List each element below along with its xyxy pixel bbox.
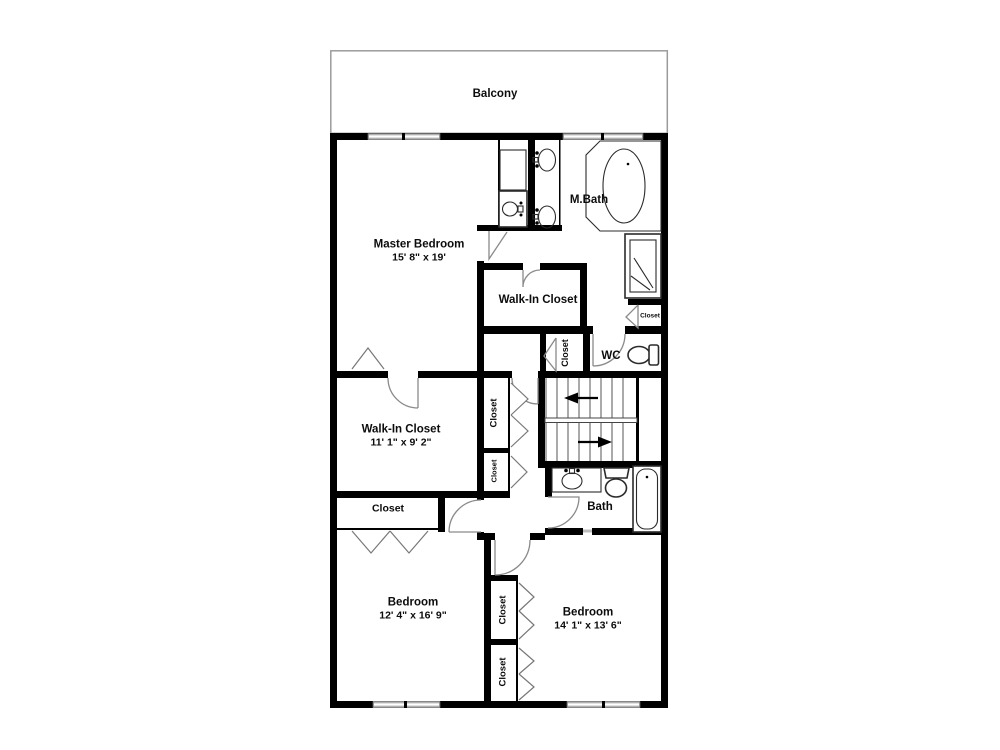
- label-closet-bedroom-right-lower: Closet: [498, 657, 509, 686]
- wic-upper-door-icon: [523, 270, 540, 287]
- label-master-bath: M.Bath: [570, 193, 608, 207]
- label-bedroom-right: Bedroom 14' 1" x 13' 6": [554, 605, 622, 633]
- vanity-sink-icon: [533, 149, 556, 171]
- bedroom-left-name: Bedroom: [379, 595, 447, 609]
- window-mullion: [601, 133, 604, 140]
- label-bath: Bath: [587, 500, 613, 514]
- label-closet-hall-lower: Closet: [490, 460, 499, 483]
- wic-lower-dims: 11' 1" x 9' 2": [362, 437, 441, 450]
- label-walk-in-closet-upper: Walk-In Closet: [499, 293, 578, 307]
- shower-icon: [625, 234, 661, 298]
- window-mullion: [404, 701, 407, 708]
- laundry-nook: [499, 150, 527, 227]
- bifold-door-icon: [352, 348, 384, 369]
- door-threshold: [583, 530, 592, 533]
- stair-railing: [545, 418, 637, 423]
- bath-sink-icon: [552, 468, 601, 492]
- stairs: [545, 378, 637, 461]
- floorplan-canvas: Balcony Master Bedroom 15' 8" x 19' M.Ba…: [0, 0, 1000, 750]
- closet-name: Closet: [640, 313, 660, 320]
- bedroom-right-name: Bedroom: [554, 605, 622, 619]
- master-bedroom-dims: 15' 8" x 19': [374, 252, 465, 265]
- bifold-door-icon: [511, 383, 528, 415]
- master-door-icon: [489, 231, 507, 259]
- closet-name: Closet: [498, 657, 509, 686]
- label-closet-bedroom-right-upper: Closet: [498, 595, 509, 624]
- bifold-door-icon: [519, 648, 534, 674]
- bedroom-left-door-icon: [449, 500, 481, 532]
- closet-name: Closet: [560, 339, 570, 367]
- label-wc: WC: [601, 349, 620, 363]
- washer-icon: [500, 150, 526, 190]
- toilet-icon: [628, 345, 659, 365]
- label-closet-by-bedroom-left: Closet: [372, 502, 404, 515]
- closet-name: Closet: [489, 398, 500, 427]
- vanity-sink-icon: [533, 206, 556, 228]
- wc-name: WC: [601, 349, 620, 363]
- window-mullion: [402, 133, 405, 140]
- label-closet-by-shower: Closet: [640, 313, 660, 320]
- bath-name: Bath: [587, 500, 613, 514]
- label-balcony: Balcony: [473, 87, 518, 101]
- closet-name: Closet: [372, 502, 404, 515]
- bath-door-icon: [548, 497, 579, 528]
- master-bedroom-name: Master Bedroom: [374, 237, 465, 251]
- label-walk-in-closet-lower: Walk-In Closet 11' 1" x 9' 2": [362, 422, 441, 450]
- master-bath-name: M.Bath: [570, 193, 608, 207]
- bifold-door-icon: [519, 611, 534, 639]
- wic-lower-name: Walk-In Closet: [362, 422, 441, 436]
- wic-lower-door-icon: [388, 378, 418, 408]
- bedroom-right-door-icon: [495, 540, 530, 575]
- closet-name: Closet: [490, 460, 499, 483]
- label-closet-by-wc: Closet: [560, 339, 570, 367]
- bifold-door-icon: [352, 531, 390, 553]
- bedroom-left-dims: 12' 4" x 16' 9": [379, 610, 447, 623]
- bifold-door-icon: [519, 674, 534, 700]
- bathtub-icon: [633, 466, 661, 532]
- bifold-door-icon: [519, 583, 534, 611]
- floorplan-drawing: [0, 0, 1000, 750]
- wic-upper-name: Walk-In Closet: [499, 293, 578, 307]
- bifold-door-icon: [390, 531, 428, 553]
- toilet-icon: [604, 468, 629, 497]
- label-master-bedroom: Master Bedroom 15' 8" x 19': [374, 237, 465, 265]
- stairs-down-arrow-icon: [578, 437, 612, 448]
- bifold-door-icon: [511, 456, 527, 488]
- closet-door-icon: [626, 305, 638, 328]
- window-mullion: [602, 701, 605, 708]
- label-bedroom-left: Bedroom 12' 4" x 16' 9": [379, 595, 447, 623]
- closet-name: Closet: [498, 595, 509, 624]
- bathtub-icon: [586, 141, 661, 231]
- balcony-name: Balcony: [473, 87, 518, 101]
- bedroom-right-dims: 14' 1" x 13' 6": [554, 620, 622, 633]
- bifold-door-icon: [511, 415, 528, 447]
- label-closet-hall-upper: Closet: [489, 398, 500, 427]
- stairs-up-arrow-icon: [564, 393, 598, 404]
